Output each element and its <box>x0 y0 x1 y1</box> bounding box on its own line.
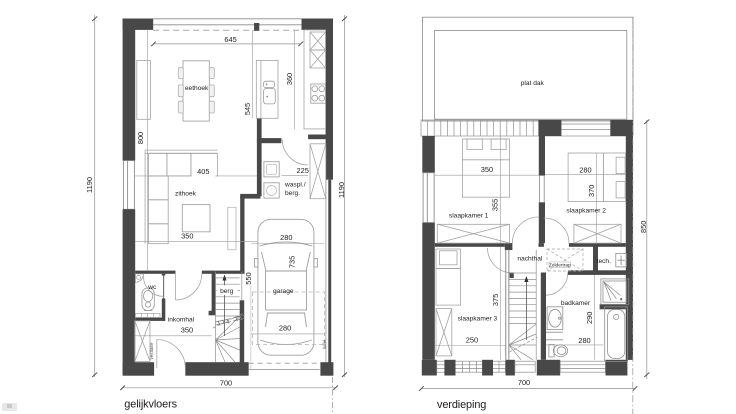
svg-text:tech.: tech. <box>597 258 611 265</box>
svg-text:350: 350 <box>481 165 493 174</box>
svg-text:gelijkvloers: gelijkvloers <box>124 398 177 410</box>
svg-text:800: 800 <box>136 132 145 144</box>
svg-text:280: 280 <box>280 233 292 242</box>
svg-text:berg.: berg. <box>285 190 300 197</box>
svg-text:1190: 1190 <box>337 182 346 198</box>
svg-text:280: 280 <box>578 336 590 345</box>
svg-text:370: 370 <box>587 185 596 197</box>
svg-text:nachthal: nachthal <box>517 256 542 263</box>
svg-text:350: 350 <box>181 231 193 240</box>
svg-text:645: 645 <box>224 35 236 44</box>
svg-text:slaapkamer 3: slaapkamer 3 <box>458 316 498 323</box>
svg-text:plat dak: plat dak <box>521 80 545 87</box>
svg-text:vestiaire: vestiaire <box>149 342 154 360</box>
svg-text:225: 225 <box>297 166 309 175</box>
svg-text:wc: wc <box>147 284 157 291</box>
svg-text:slaapkamer 1: slaapkamer 1 <box>449 212 489 219</box>
svg-text:375: 375 <box>491 294 500 306</box>
svg-text:slaapkamer 2: slaapkamer 2 <box>566 207 606 214</box>
svg-text:350: 350 <box>181 326 193 335</box>
svg-text:zithoek: zithoek <box>175 191 197 198</box>
svg-text:280: 280 <box>279 323 291 332</box>
svg-text:eethoek: eethoek <box>185 85 209 92</box>
svg-text:Zoldertrap: Zoldertrap <box>549 263 571 269</box>
svg-text:waspl./: waspl./ <box>284 182 306 189</box>
svg-text:355: 355 <box>491 199 500 211</box>
svg-text:545: 545 <box>243 103 252 115</box>
svg-text:550: 550 <box>244 272 253 284</box>
svg-text:250: 250 <box>466 336 478 345</box>
svg-text:inkomhal: inkomhal <box>168 317 195 324</box>
svg-text:850: 850 <box>639 221 648 233</box>
svg-text:luifel: luifel <box>322 340 327 349</box>
svg-text:garage: garage <box>273 288 294 295</box>
svg-text:berg: berg <box>220 288 234 295</box>
svg-text:360: 360 <box>285 73 294 85</box>
svg-text:700: 700 <box>220 378 232 387</box>
svg-text:1190: 1190 <box>85 177 94 193</box>
svg-text:verdieping: verdieping <box>437 399 486 411</box>
svg-text:280: 280 <box>579 166 591 175</box>
svg-text:badkamer: badkamer <box>561 300 591 307</box>
svg-text:405: 405 <box>197 167 209 176</box>
svg-text:290: 290 <box>585 312 594 324</box>
svg-text:735: 735 <box>288 256 297 268</box>
svg-text:700: 700 <box>518 378 530 387</box>
